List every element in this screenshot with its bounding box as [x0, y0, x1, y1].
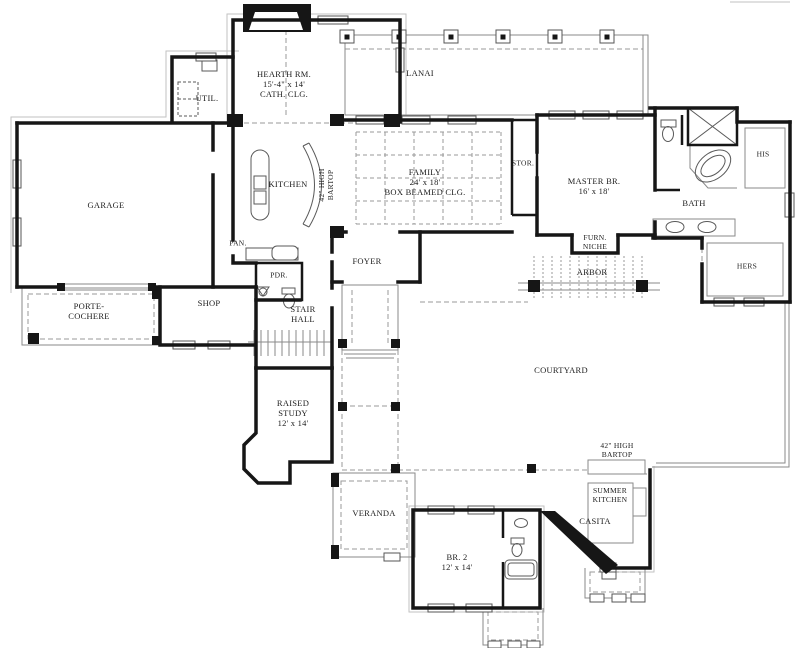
room-label-bath: BATH: [682, 198, 705, 208]
room-label-util: UTIL.: [196, 93, 219, 103]
posts-and-blocks: [28, 4, 648, 574]
label-line: CATH. CLG.: [257, 89, 311, 99]
label-line: BARTOP: [600, 451, 633, 460]
label-summer-bartop: 42" HIGH BARTOP: [600, 442, 633, 460]
room-label-summer-kitchen: SUMMER KITCHEN: [593, 487, 628, 505]
label-line: BATH: [682, 198, 705, 208]
room-label-garage: GARAGE: [88, 200, 125, 210]
label-line: BARTOP: [327, 168, 336, 201]
arbor-post-icon: [528, 280, 540, 292]
br2-bath-fixtures-icon: [505, 519, 537, 580]
label-line: HIS: [757, 151, 770, 160]
powder-fixtures-icon: [257, 287, 295, 308]
pantry-shelves: [246, 246, 298, 260]
label-furn-niche: FURN. NICHE: [583, 234, 607, 252]
label-line: BR. 2: [442, 552, 473, 562]
room-label-his-closet: HIS: [757, 151, 770, 160]
label-line: HEARTH RM.: [257, 69, 311, 79]
label-line: HALL: [290, 314, 315, 324]
room-label-hers-closet: HERS: [737, 263, 757, 272]
label-line: HERS: [737, 263, 757, 272]
label-line: MASTER BR.: [568, 176, 621, 186]
room-label-pantry: PAN.: [229, 240, 246, 249]
util-appliances-icon: [178, 60, 217, 116]
exterior-walls: [17, 20, 790, 608]
floorplan-drawing: [0, 0, 800, 648]
label-line: STOR.: [512, 160, 534, 169]
room-label-family: FAMILY 24' x 18' BOX BEAMED CLG.: [385, 167, 466, 197]
label-arbor: ARBOR: [577, 267, 608, 277]
bath-fixtures: [178, 60, 737, 579]
windows: [13, 16, 794, 648]
label-line: STUDY: [277, 408, 309, 418]
master-toilet-icon: [661, 120, 676, 142]
label-line: VERANDA: [352, 508, 395, 518]
label-line: 24' x 18': [385, 177, 466, 187]
label-line: 12' x 14': [442, 562, 473, 572]
label-line: STAIR: [290, 304, 315, 314]
label-line: SHOP: [198, 298, 221, 308]
label-line: 15'-4" x 14': [257, 79, 311, 89]
floor-plan-page: HEARTH RM. 15'-4" x 14' CATH. CLG. LANAI…: [0, 0, 800, 648]
room-label-kitchen: KITCHEN: [268, 179, 307, 189]
room-label-powder: PDR.: [270, 272, 287, 281]
shower-x-icon: [688, 108, 737, 145]
room-label-veranda: VERANDA: [352, 508, 395, 518]
label-line: PORTE-: [68, 301, 109, 311]
room-label-raised-study: RAISED STUDY 12' x 14': [277, 398, 309, 428]
label-line: FAMILY: [385, 167, 466, 177]
room-label-hearth: HEARTH RM. 15'-4" x 14' CATH. CLG.: [257, 69, 311, 99]
room-label-lanai: LANAI: [406, 68, 434, 78]
label-line: COCHERE: [68, 311, 109, 321]
label-line: RAISED: [277, 398, 309, 408]
label-line: PDR.: [270, 272, 287, 281]
arbor-slats: [534, 256, 642, 300]
room-label-porte-cochere: PORTE- COCHERE: [68, 301, 109, 321]
label-line: UTIL.: [196, 93, 219, 103]
label-line: GARAGE: [88, 200, 125, 210]
label-line: KITCHEN: [593, 496, 628, 505]
label-line: 16' x 18': [568, 186, 621, 196]
room-label-storage: STOR.: [512, 160, 534, 169]
label-line: KITCHEN: [268, 179, 307, 189]
label-line: NICHE: [583, 243, 607, 252]
label-line: FOYER: [352, 256, 381, 266]
label-kitchen-bartop: 42" HIGH BARTOP: [318, 168, 336, 201]
label-line: 12' x 14': [277, 418, 309, 428]
label-line: ARBOR: [577, 267, 608, 277]
label-line: BOX BEAMED CLG.: [385, 187, 466, 197]
label-line: COURTYARD: [534, 365, 588, 375]
room-label-stair-hall: STAIR HALL: [290, 304, 315, 324]
room-label-casita: CASITA: [579, 516, 611, 526]
kitchen-island: [251, 150, 269, 220]
label-line: LANAI: [406, 68, 434, 78]
vanity-sinks-icon: [666, 222, 716, 233]
room-label-shop: SHOP: [198, 298, 221, 308]
arbor-post-icon: [636, 280, 648, 292]
room-label-foyer: FOYER: [352, 256, 381, 266]
label-line: PAN.: [229, 240, 246, 249]
porte-post-icon: [28, 333, 39, 344]
room-label-courtyard: COURTYARD: [534, 365, 588, 375]
room-label-bedroom2: BR. 2 12' x 14': [442, 552, 473, 572]
label-line: CASITA: [579, 516, 611, 526]
room-label-master: MASTER BR. 16' x 18': [568, 176, 621, 196]
corner-tub-icon: [689, 143, 737, 188]
